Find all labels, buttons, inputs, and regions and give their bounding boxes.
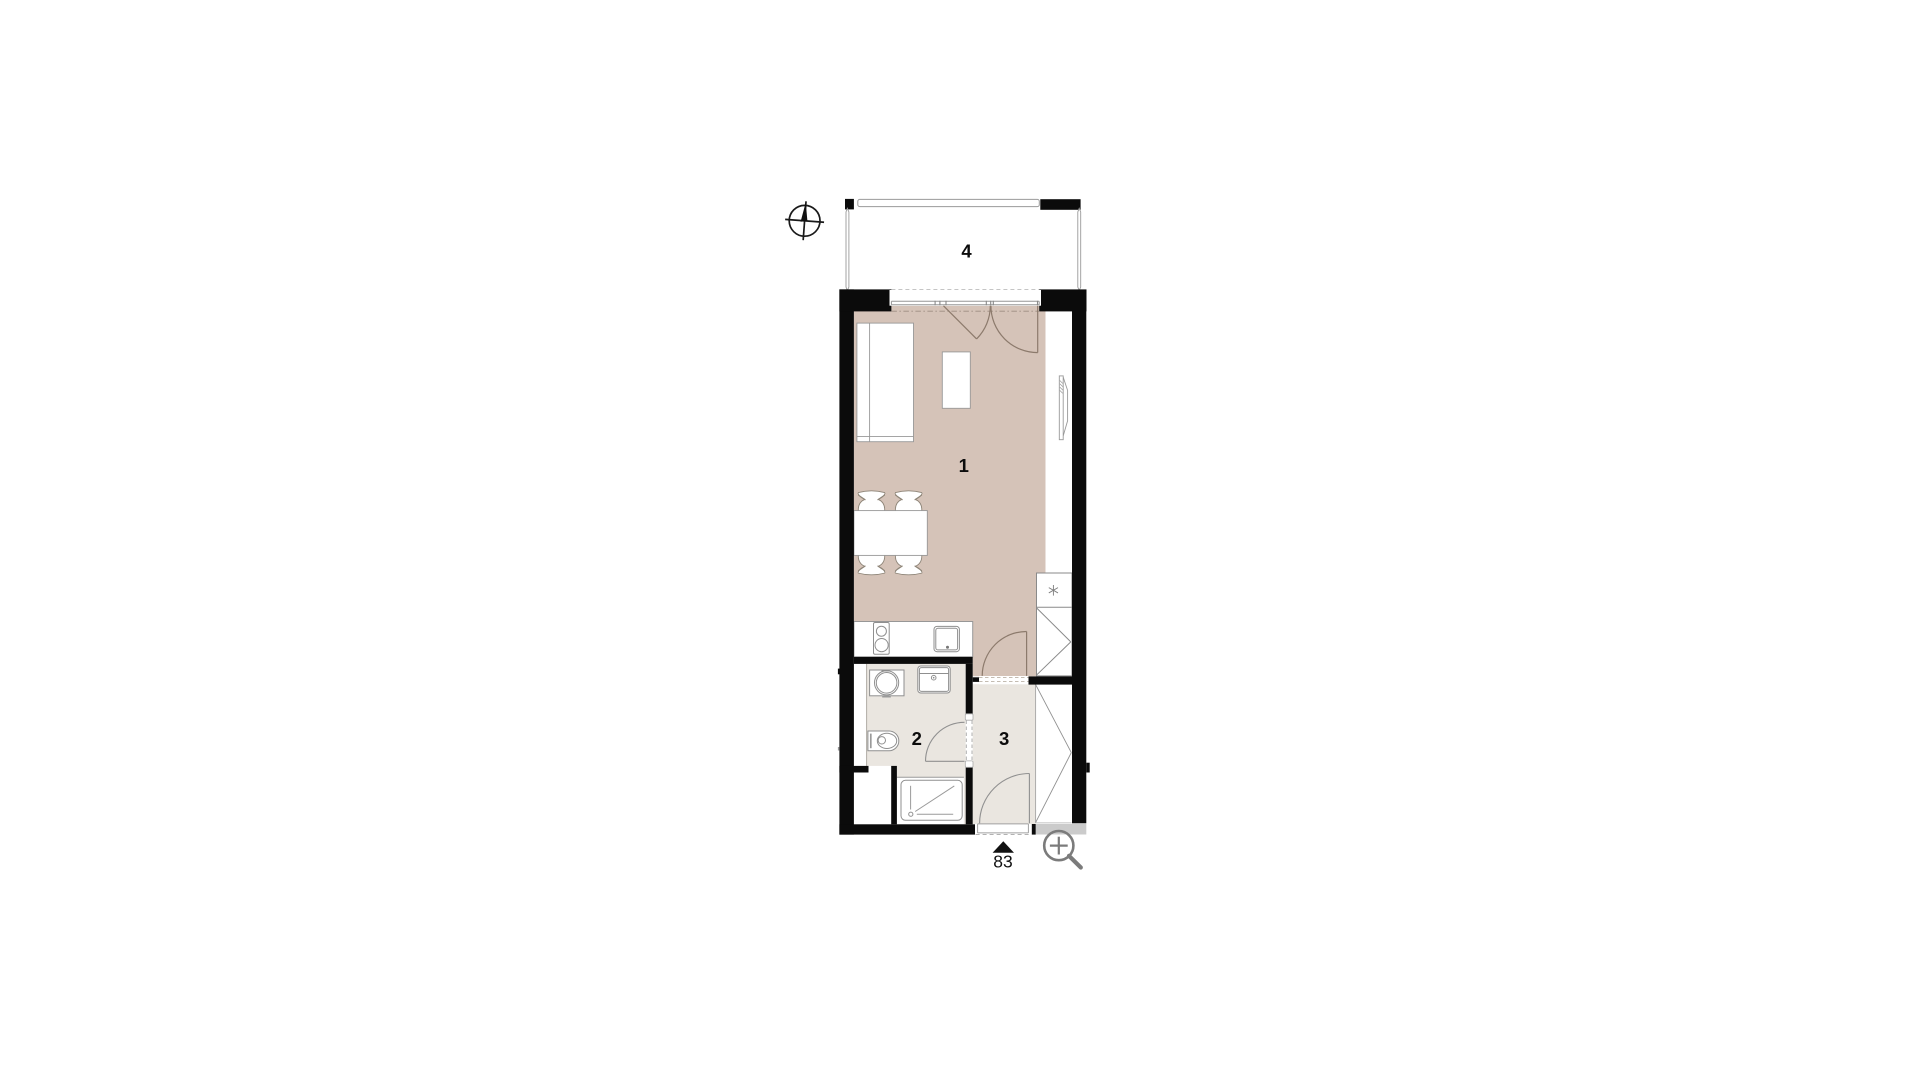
svg-text:1: 1 bbox=[959, 455, 969, 476]
svg-text:83: 83 bbox=[993, 852, 1012, 872]
svg-text:3: 3 bbox=[999, 728, 1009, 749]
svg-text:4: 4 bbox=[961, 241, 972, 262]
svg-text:2: 2 bbox=[912, 728, 922, 749]
